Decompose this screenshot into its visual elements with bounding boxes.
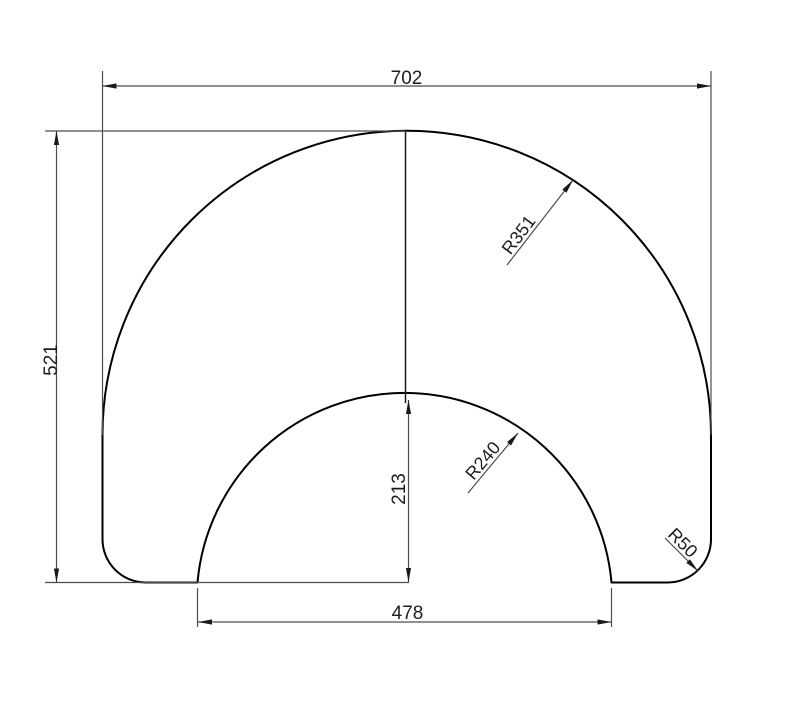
- label-corner-radius: R50: [664, 524, 701, 561]
- label-outer-radius: R351: [498, 212, 540, 258]
- arrow-height-top: [54, 131, 59, 145]
- arrow-inner-width-left: [198, 619, 212, 624]
- part-outline: [103, 131, 712, 583]
- arrow-height-bottom: [54, 569, 59, 583]
- technical-drawing-canvas: 702 521 213 478 R351 R240 R50: [0, 0, 790, 705]
- label-height: 521: [41, 344, 62, 376]
- label-width: 702: [391, 68, 423, 89]
- label-inner-width: 478: [392, 603, 424, 624]
- label-inner-radius: R240: [461, 438, 504, 484]
- dimension-lines: [45, 71, 711, 627]
- arrow-width-right: [697, 83, 711, 88]
- label-inner-height: 213: [389, 473, 410, 505]
- arrow-inner-height-bottom: [406, 568, 411, 582]
- cad-drawing: 702 521 213 478 R351 R240 R50: [0, 0, 790, 705]
- arrow-inner-height-top: [406, 400, 411, 414]
- arrowheads: [54, 83, 711, 624]
- arrow-width-left: [103, 83, 117, 88]
- arrow-inner-width-right: [598, 619, 612, 624]
